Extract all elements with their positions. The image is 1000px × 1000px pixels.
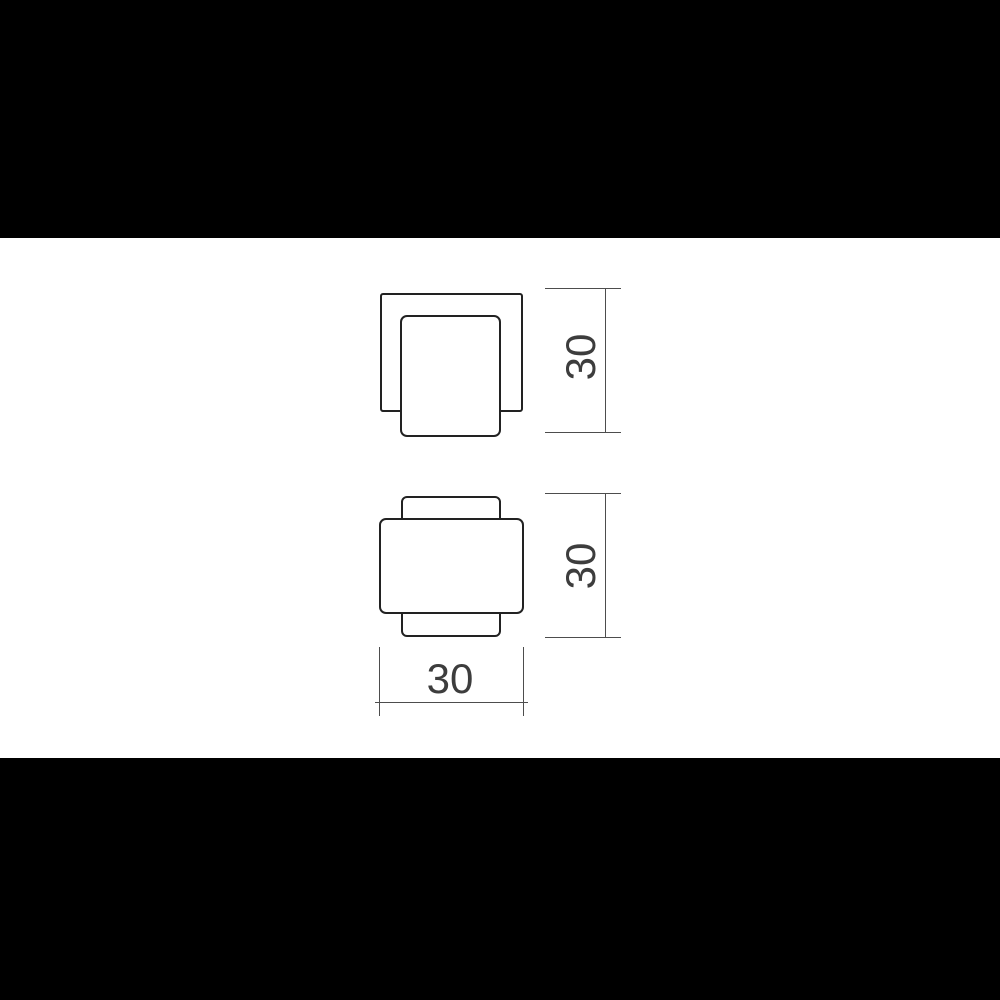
side-view-height-dimension-line: [605, 288, 606, 432]
letterbox-bottom-bar: [0, 758, 1000, 1000]
front-view-width-dimension-label: 30: [427, 658, 474, 700]
front-view-body: [379, 518, 524, 614]
letterbox-top-bar: [0, 0, 1000, 238]
drawing-page: 30 30 30: [0, 0, 1000, 1000]
front-view-extension-line-top: [545, 493, 621, 494]
side-view-extension-line-top: [545, 288, 621, 289]
front-view-width-extension-line-left: [379, 647, 380, 716]
side-view-extension-line-bottom: [545, 432, 621, 433]
side-view-knob-body: [400, 315, 501, 437]
front-view-extension-line-bottom: [545, 637, 621, 638]
side-view-height-dimension-label: 30: [560, 334, 602, 381]
drawing-canvas: 30 30 30: [0, 238, 1000, 758]
front-view-width-extension-line-right: [523, 647, 524, 716]
front-view-height-dimension-line: [605, 493, 606, 638]
front-view-height-dimension-label: 30: [560, 543, 602, 590]
